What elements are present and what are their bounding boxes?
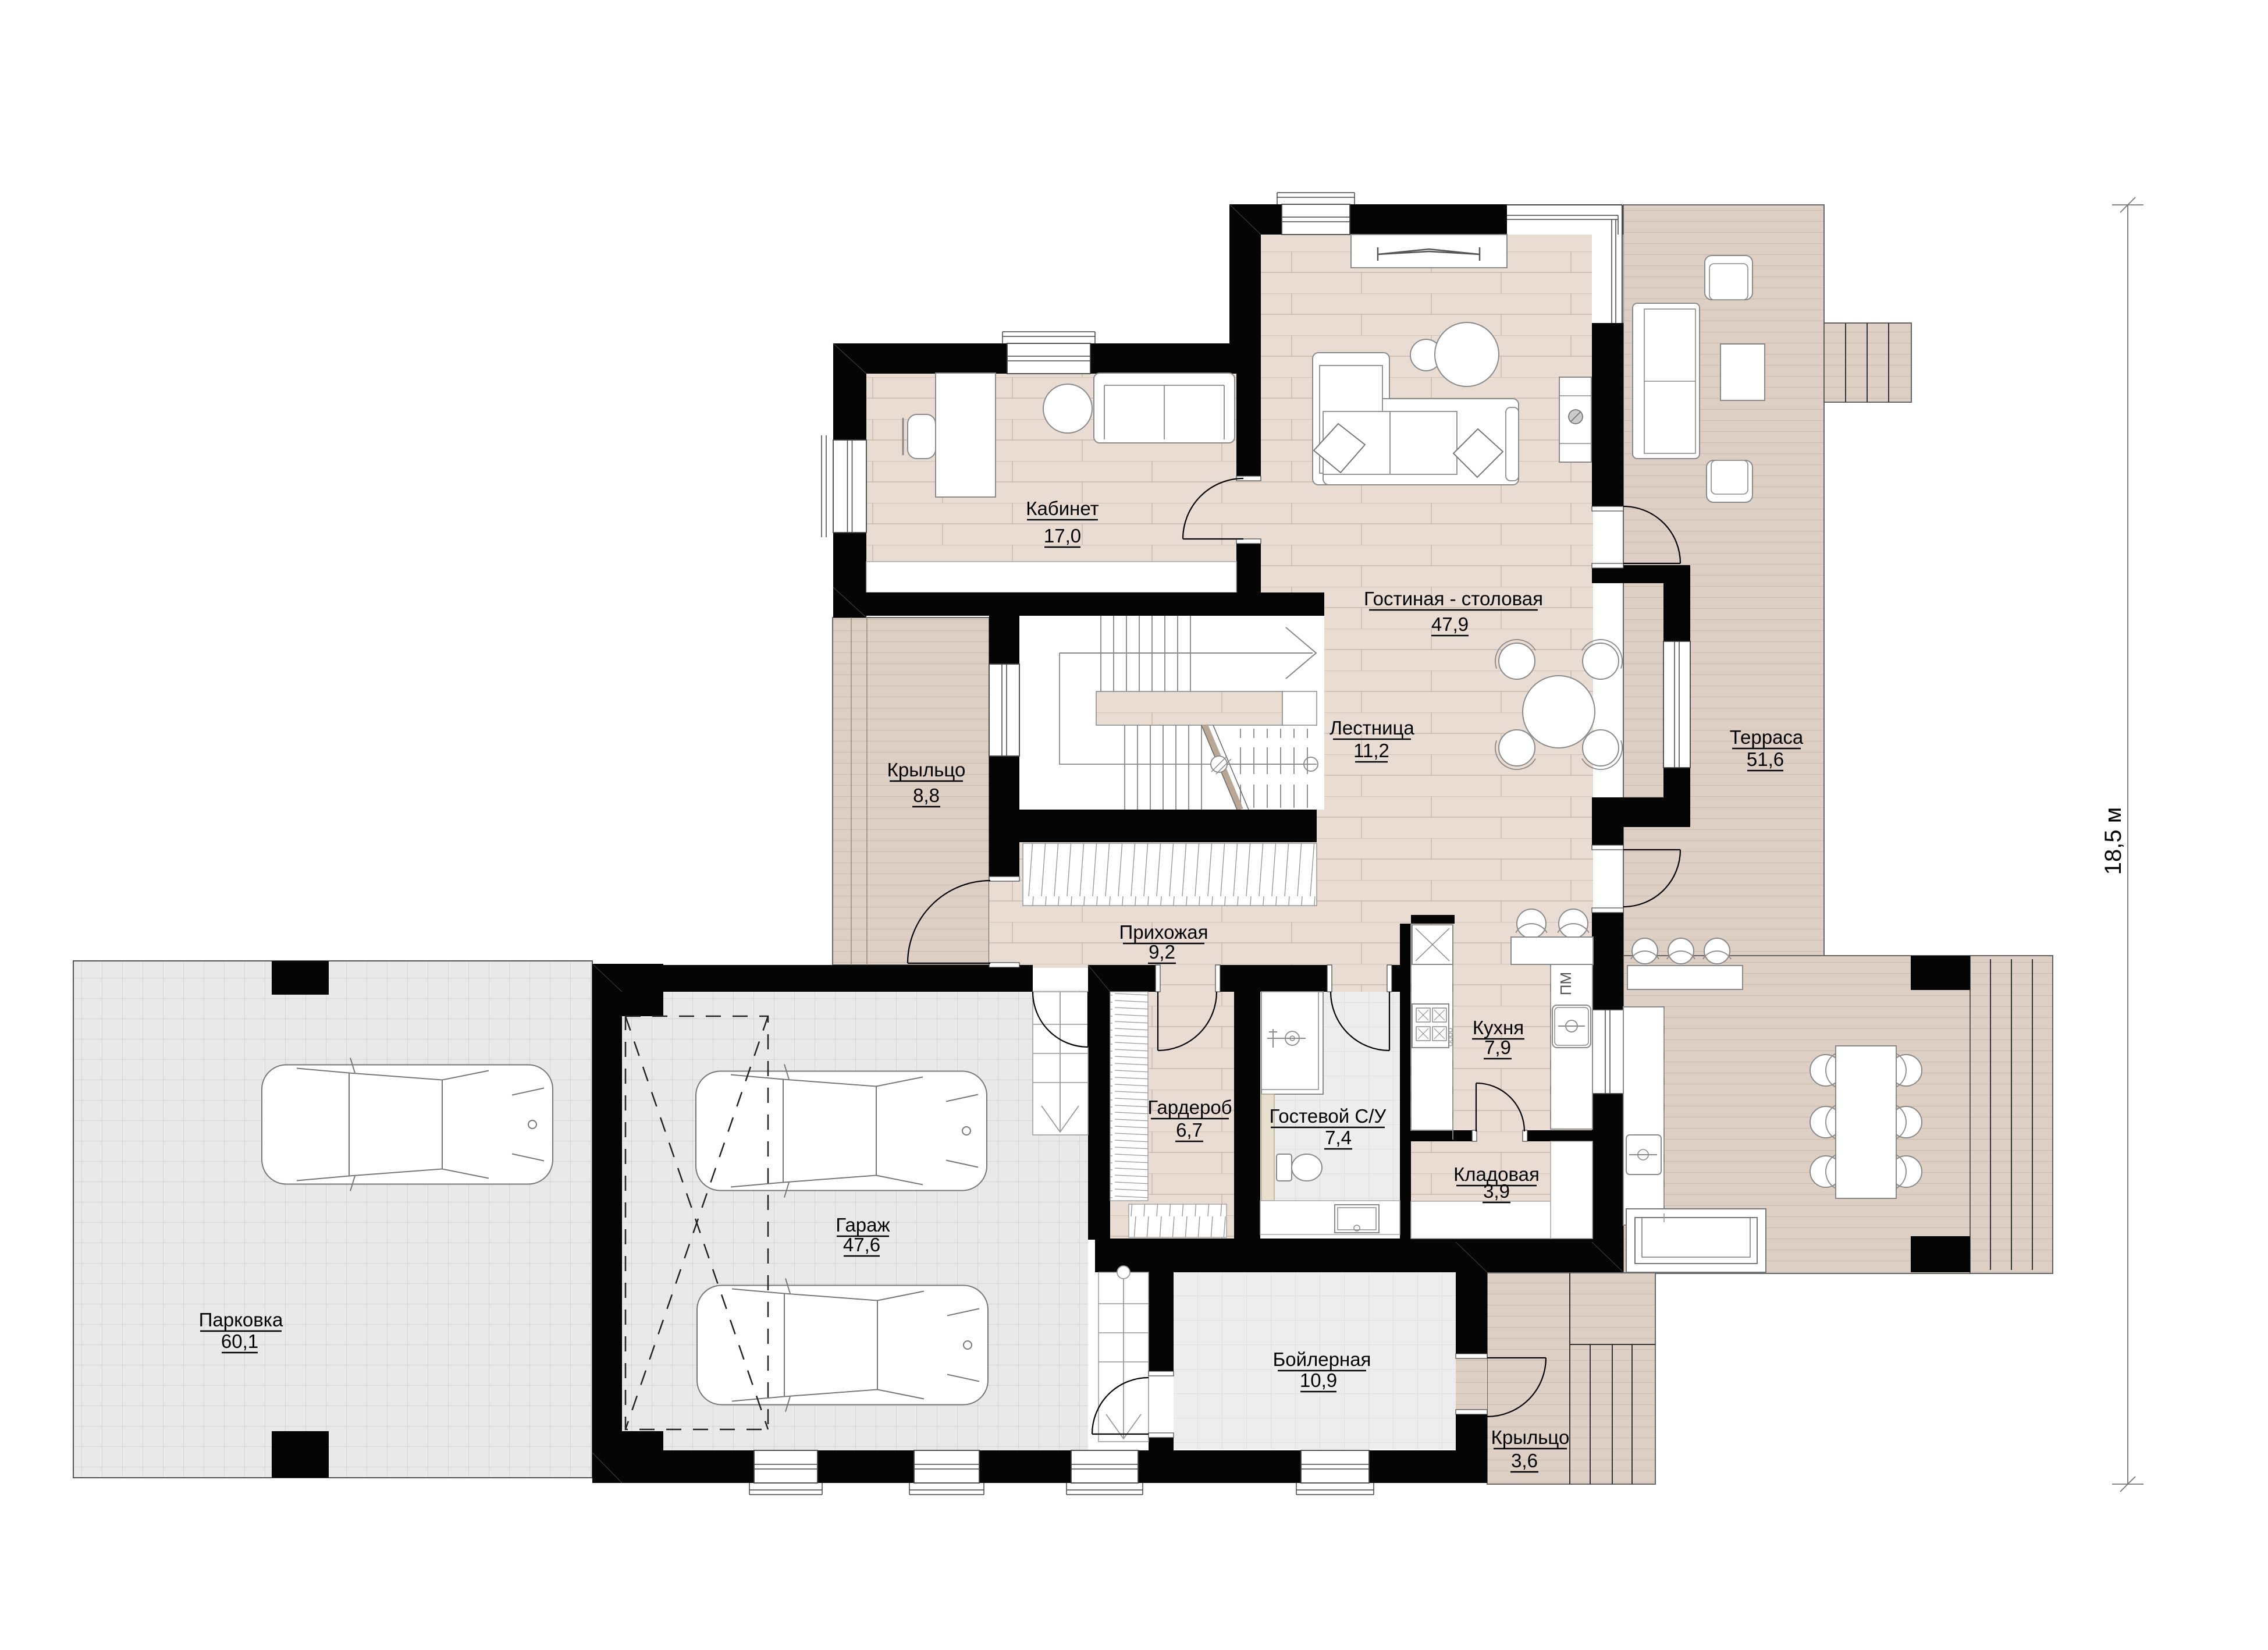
svg-text:Парковка: Парковка xyxy=(199,1309,283,1330)
svg-text:3,6: 3,6 xyxy=(1511,1450,1538,1471)
svg-text:9,2: 9,2 xyxy=(1149,941,1175,963)
svg-text:3,9: 3,9 xyxy=(1483,1180,1510,1202)
svg-text:7,9: 7,9 xyxy=(1484,1037,1511,1058)
svg-text:7,4: 7,4 xyxy=(1325,1127,1352,1148)
svg-text:6,7: 6,7 xyxy=(1176,1119,1203,1141)
svg-text:ПМ: ПМ xyxy=(1557,972,1574,995)
svg-text:47,9: 47,9 xyxy=(1431,613,1469,635)
svg-text:11,2: 11,2 xyxy=(1353,740,1389,761)
svg-text:Гостевой С/У: Гостевой С/У xyxy=(1270,1105,1387,1127)
svg-text:Прихожая: Прихожая xyxy=(1119,921,1208,943)
svg-text:51,6: 51,6 xyxy=(1747,748,1784,770)
svg-text:Крыльцо: Крыльцо xyxy=(1491,1427,1570,1448)
svg-text:Терраса: Терраса xyxy=(1730,726,1804,748)
svg-text:60,1: 60,1 xyxy=(221,1330,258,1352)
svg-text:Гараж: Гараж xyxy=(836,1214,890,1236)
svg-text:Кухня: Кухня xyxy=(1473,1017,1524,1038)
svg-text:Лестница: Лестница xyxy=(1329,717,1414,739)
svg-text:10,9: 10,9 xyxy=(1300,1369,1337,1391)
svg-text:Кабинет: Кабинет xyxy=(1026,498,1099,519)
svg-text:8,8: 8,8 xyxy=(913,785,940,806)
svg-text:18,5 м: 18,5 м xyxy=(2100,807,2126,875)
svg-text:17,0: 17,0 xyxy=(1044,525,1081,547)
svg-text:Гостиная - столовая: Гостиная - столовая xyxy=(1364,588,1543,609)
svg-text:Бойлерная: Бойлерная xyxy=(1273,1349,1371,1370)
svg-text:Крыльцо: Крыльцо xyxy=(887,759,966,780)
svg-text:Гардероб: Гардероб xyxy=(1147,1097,1232,1118)
svg-text:47,6: 47,6 xyxy=(843,1234,880,1255)
